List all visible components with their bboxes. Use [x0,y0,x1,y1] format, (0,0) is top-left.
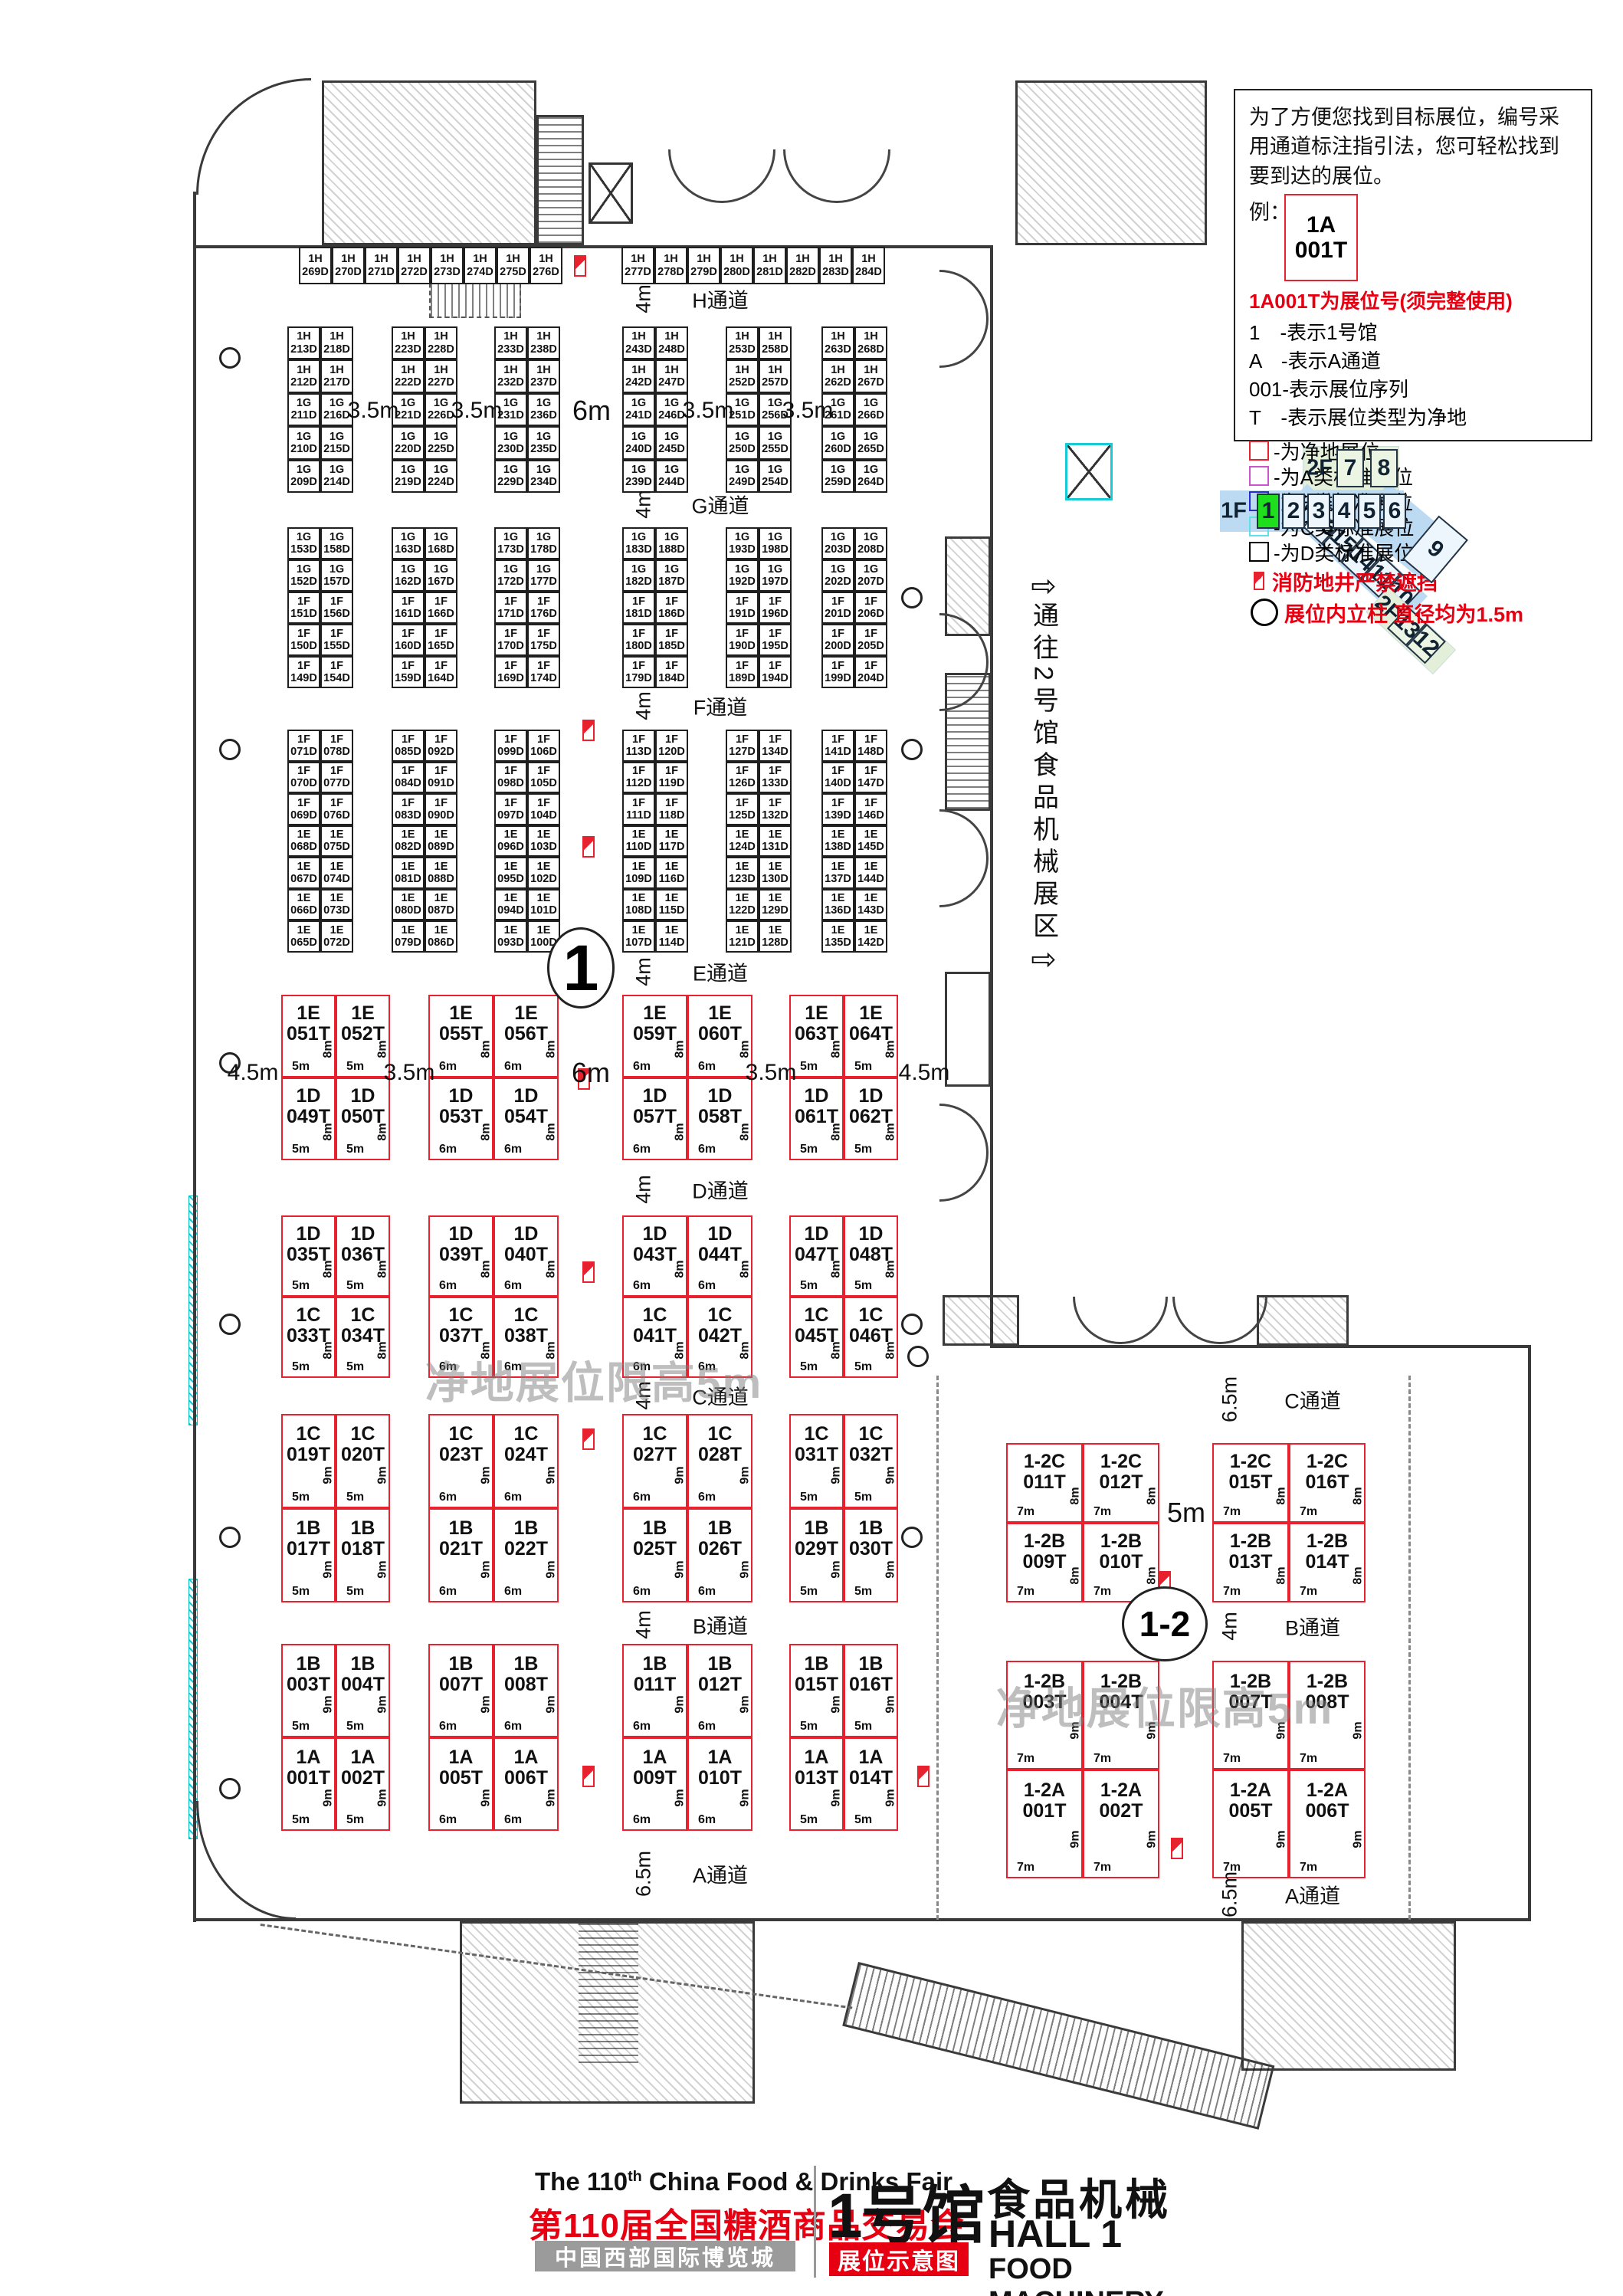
booth-1-2C-011T: 1-2C011T8m7m [1006,1443,1083,1523]
minimap-hall-4: 4 [1333,494,1356,529]
arrow-right-icon: ⇨ [1031,571,1057,602]
booth-1D-048T: 1D048T8m5m [844,1215,898,1297]
booth-1G-236D: 1G236D [527,393,560,426]
booth-1F-196D: 1F196D [759,592,792,624]
booth-1-2A-006T: 1-2A006T9m7m [1289,1770,1366,1878]
booth-1D-061T: 1D061T8m5m [789,1077,844,1160]
booth-1A-006T: 1A006T9m6m [493,1737,559,1831]
booth-1D-049T: 1D049T8m5m [281,1077,336,1160]
booth-1-2A-002T: 1-2A002T9m7m [1083,1770,1159,1878]
booth-1F-127D: 1F127D [726,730,759,762]
booth-1F-160D: 1F160D [392,624,425,656]
legend-intro-1: 为了方便您找到目标展位，编号采 [1249,103,1577,132]
booth-1F-125D: 1F125D [726,793,759,825]
booth-1H-274D: 1H274D [464,247,497,284]
booth-1H-243D: 1H243D [622,326,655,359]
booth-1B-025T: 1B025T9m6m [622,1508,687,1602]
booth-1G-153D: 1G153D [287,527,320,559]
gap-dim-label: 4.5m [228,1060,279,1086]
door-arc-icon [939,319,989,368]
fire-well-icon [582,836,595,858]
divider [814,2166,816,2278]
door-arc-icon [837,149,890,203]
booth-1H-247D: 1H247D [655,359,688,392]
booth-1G-239D: 1G239D [622,460,655,493]
door-arc-icon [1120,1297,1168,1344]
booth-1F-091D: 1F091D [425,762,457,794]
gap-dim-label: 3.5m [348,398,399,424]
booth-1F-174D: 1F174D [527,656,560,688]
legend-rule-2: A -表示A通道 [1249,347,1577,376]
booth-1B-026T: 1B026T9m6m [687,1508,752,1602]
booth-1H-248D: 1H248D [655,326,688,359]
booth-1A-002T: 1A002T9m5m [336,1737,390,1831]
booth-1E-109D: 1E109D [622,857,655,889]
booth-1E-122D: 1E122D [726,889,759,921]
booth-1E-056T: 1E056T8m6m [493,995,559,1077]
booth-1G-219D: 1G219D [392,460,425,493]
booth-1G-178D: 1G178D [527,527,560,559]
pillar-icon [219,739,241,760]
pillar-icon [219,1314,241,1335]
booth-1B-018T: 1B018T9m5m [336,1508,390,1602]
wing-boundary-dashed [936,1376,939,1920]
booth-1E-114D: 1E114D [655,920,688,953]
legend-example-label: 例： [1249,198,1290,227]
fire-well-icon [582,1261,595,1283]
booth-1F-169D: 1F169D [494,656,527,688]
booth-1C-031T: 1C031T9m5m [789,1414,844,1508]
booth-1E-103D: 1E103D [527,825,560,858]
booth-1F-189D: 1F189D [726,656,759,688]
booth-1D-043T: 1D043T8m6m [622,1215,687,1297]
booth-1G-163D: 1G163D [392,527,425,559]
booth-1F-165D: 1F165D [425,624,457,656]
booth-1H-222D: 1H222D [392,359,425,392]
booth-1H-268D: 1H268D [854,326,887,359]
floor-plan-page: 为了方便您找到目标展位，编号采 用通道标注指引法，您可轻松找到 要到达的展位。 … [0,0,1623,2296]
booth-1E-101D: 1E101D [527,889,560,921]
booth-1G-187D: 1G187D [655,559,688,592]
booth-1E-065D: 1E065D [287,920,320,953]
gap-dim-label: 3.5m [384,1060,435,1086]
booth-1G-264D: 1G264D [854,460,887,493]
booth-1E-115D: 1E115D [655,889,688,921]
booth-1H-233D: 1H233D [494,326,527,359]
booth-1F-092D: 1F092D [425,730,457,762]
booth-1E-082D: 1E082D [392,825,425,858]
booth-1F-112D: 1F112D [622,762,655,794]
pillar-icon [901,1314,923,1335]
booth-1G-240D: 1G240D [622,426,655,459]
door-arc-icon [939,1153,989,1202]
booth-1D-057T: 1D057T8m6m [622,1077,687,1160]
aisle-width-label: 4m [632,284,656,313]
booth-1H-238D: 1H238D [527,326,560,359]
booth-1F-151D: 1F151D [287,592,320,624]
booth-1H-281D: 1H281D [753,247,786,284]
booth-1-2A-001T: 1-2A001T9m7m [1006,1770,1083,1878]
booth-1G-225D: 1G225D [425,426,457,459]
booth-1F-069D: 1F069D [287,793,320,825]
booth-1F-083D: 1F083D [392,793,425,825]
booth-1-2B-014T: 1-2B014T8m7m [1289,1523,1366,1602]
booth-1H-212D: 1H212D [287,359,320,392]
booth-1E-067D: 1E067D [287,857,320,889]
booth-1H-217D: 1H217D [320,359,353,392]
fire-well-icon [582,1428,595,1450]
booth-1D-040T: 1D040T8m6m [493,1215,559,1297]
booth-1A-005T: 1A005T9m6m [428,1737,493,1831]
booth-1G-198D: 1G198D [759,527,792,559]
booth-1F-071D: 1F071D [287,730,320,762]
escalator-icon [842,1962,1274,2130]
booth-1G-265D: 1G265D [854,426,887,459]
wing-aisle-label-B通道: B通道 [1285,1612,1340,1642]
booth-1E-136D: 1E136D [821,889,854,921]
booth-1E-107D: 1E107D [622,920,655,953]
booth-1E-094D: 1E094D [494,889,527,921]
booth-1H-223D: 1H223D [392,326,425,359]
gap-dim-label: 3.5m [683,398,734,424]
aisle-label-G通道: G通道 [691,490,749,520]
booth-1F-070D: 1F070D [287,762,320,794]
hall-title-en: HALL 1 [989,2212,1122,2256]
booth-1E-064T: 1E064T8m5m [844,995,898,1077]
booth-1F-195D: 1F195D [759,624,792,656]
booth-1E-108D: 1E108D [622,889,655,921]
booth-1H-263D: 1H263D [821,326,854,359]
fire-well-icon [1254,572,1264,590]
booth-1F-133D: 1F133D [759,762,792,794]
booth-1G-202D: 1G202D [821,559,854,592]
pillar-icon [901,739,923,760]
booth-1F-180D: 1F180D [622,624,655,656]
booth-1B-003T: 1B003T9m5m [281,1644,336,1737]
booth-1F-176D: 1F176D [527,592,560,624]
height-limit-watermark: 净地展位限高5m [425,1348,762,1411]
booth-1E-066D: 1E066D [287,889,320,921]
booth-1F-175D: 1F175D [527,624,560,656]
booth-1A-009T: 1A009T9m6m [622,1737,687,1831]
booth-1E-145D: 1E145D [854,825,887,858]
elevator-icon [589,162,633,224]
aisle-width-label: 4m [632,957,656,986]
booth-1H-228D: 1H228D [425,326,457,359]
booth-1G-215D: 1G215D [320,426,353,459]
swatch-icon [1249,466,1269,486]
pillar-icon [219,347,241,369]
height-limit-watermark: 净地展位限高5m [996,1674,1333,1737]
booth-1F-186D: 1F186D [655,592,688,624]
booth-1E-129D: 1E129D [759,889,792,921]
booth-1G-177D: 1G177D [527,559,560,592]
booth-1G-193D: 1G193D [726,527,759,559]
gap-dim-label: 3.5m [782,398,834,424]
booth-1G-245D: 1G245D [655,426,688,459]
booth-1E-093D: 1E093D [494,920,527,953]
booth-1C-027T: 1C027T9m6m [622,1414,687,1508]
legend-rule-3: 001-表示展位序列 [1249,376,1577,404]
booth-1F-111D: 1F111D [622,793,655,825]
aisle-width-label: 4m [632,490,656,519]
minimap-hall-1: 1 [1257,494,1280,529]
booth-1E-060T: 1E060T8m6m [687,995,752,1077]
aisle-label-E通道: E通道 [693,957,748,987]
stair-block [536,115,584,245]
restroom-block [460,1921,755,2104]
booth-1F-179D: 1F179D [622,656,655,688]
booth-1D-047T: 1D047T8m5m [789,1215,844,1297]
minimap-hall-3: 3 [1307,494,1330,529]
booth-1E-087D: 1E087D [425,889,457,921]
booth-1F-099D: 1F099D [494,730,527,762]
booth-1G-210D: 1G210D [287,426,320,459]
legend-intro-2: 用通道标注指引法，您可轻松找到 [1249,132,1577,161]
booth-1H-272D: 1H272D [398,247,431,284]
booth-1C-019T: 1C019T9m5m [281,1414,336,1508]
legend-rule-4: T -表示展位类型为净地 [1249,404,1577,432]
booth-1G-209D: 1G209D [287,460,320,493]
service-block [945,972,991,1087]
booth-1F-098D: 1F098D [494,762,527,794]
booth-1E-135D: 1E135D [821,920,854,953]
minimap-1f-label: 1F [1221,499,1247,524]
booth-1-2B-009T: 1-2B009T8m7m [1006,1523,1083,1602]
booth-1G-244D: 1G244D [655,460,688,493]
legend-fire-note: 消防地井严禁遮挡 [1272,566,1438,596]
booth-1F-181D: 1F181D [622,592,655,624]
booth-1E-130D: 1E130D [759,857,792,889]
booth-1H-279D: 1H279D [687,247,720,284]
fire-well-icon [917,1766,930,1787]
booth-1F-164D: 1F164D [425,656,457,688]
booth-1H-271D: 1H271D [365,247,398,284]
booth-1G-241D: 1G241D [622,393,655,426]
door-arc-icon [939,809,989,858]
booth-1F-126D: 1F126D [726,762,759,794]
wing-aisle-width-label: 6.5m [1218,1376,1242,1422]
fire-well-icon [582,720,595,741]
booth-1F-185D: 1F185D [655,624,688,656]
elevator-icon [1065,443,1113,500]
booth-1D-054T: 1D054T8m6m [493,1077,559,1160]
booth-1H-253D: 1H253D [726,326,759,359]
booth-1G-259D: 1G259D [821,460,854,493]
booth-1H-237D: 1H237D [527,359,560,392]
minimap-hall-7: 7 [1336,449,1364,487]
booth-1F-090D: 1F090D [425,793,457,825]
gap-dim-label: 4.5m [899,1060,950,1086]
pillar-icon [901,587,923,608]
booth-1F-205D: 1F205D [854,624,887,656]
booth-1-2B-013T: 1-2B013T8m7m [1212,1523,1289,1602]
booth-1F-201D: 1F201D [821,592,854,624]
pillar-icon [901,1527,923,1548]
booth-1F-170D: 1F170D [494,624,527,656]
booth-1A-014T: 1A014T9m5m [844,1737,898,1831]
aisle-label-D通道: D通道 [692,1175,749,1205]
swatch-icon [1249,441,1269,461]
gap-dim-label: 6m [572,1057,610,1089]
booth-1H-262D: 1H262D [821,359,854,392]
arrow-right-icon: ⇨ [1031,944,1057,975]
legend-rule-1: 1 -表示1号馆 [1249,319,1577,347]
booth-1E-059T: 1E059T8m6m [622,995,687,1077]
booth-1G-230D: 1G230D [494,426,527,459]
booth-1E-072D: 1E072D [320,920,353,953]
booth-1G-235D: 1G235D [527,426,560,459]
door-arc-icon [939,858,989,907]
booth-1G-220D: 1G220D [392,426,425,459]
wing-aisle-width-label: 6.5m [1218,1871,1242,1917]
booth-1E-081D: 1E081D [392,857,425,889]
booth-1G-211D: 1G211D [287,393,320,426]
booth-1H-257D: 1H257D [759,359,792,392]
minimap-hall-8: 8 [1370,449,1398,487]
gap-dim-label: 3.5m [746,1060,797,1086]
booth-1E-086D: 1E086D [425,920,457,953]
booth-1H-270D: 1H270D [332,247,365,284]
booth-1G-162D: 1G162D [392,559,425,592]
booth-1G-255D: 1G255D [759,426,792,459]
booth-1G-188D: 1G188D [655,527,688,559]
booth-1F-154D: 1F154D [320,656,353,688]
booth-1G-203D: 1G203D [821,527,854,559]
booth-1C-046T: 1C046T8m5m [844,1297,898,1378]
booth-1G-152D: 1G152D [287,559,320,592]
booth-1E-102D: 1E102D [527,857,560,889]
booth-1G-254D: 1G254D [759,460,792,493]
booth-1F-159D: 1F159D [392,656,425,688]
booth-1F-156D: 1F156D [320,592,353,624]
wing-aisle-width-label: 4m [1218,1612,1242,1641]
stair-block [1257,1295,1349,1346]
hall-1-2-badge: 1-2 [1122,1586,1208,1661]
booth-1F-194D: 1F194D [759,656,792,688]
booth-1F-113D: 1F113D [622,730,655,762]
booth-1G-192D: 1G192D [726,559,759,592]
booth-1H-242D: 1H242D [622,359,655,392]
booth-1B-016T: 1B016T9m5m [844,1644,898,1737]
booth-1G-249D: 1G249D [726,460,759,493]
booth-1F-149D: 1F149D [287,656,320,688]
booth-1G-207D: 1G207D [854,559,887,592]
booth-1E-123D: 1E123D [726,857,759,889]
booth-1F-085D: 1F085D [392,730,425,762]
booth-1G-250D: 1G250D [726,426,759,459]
legend-example-booth: 1A 001T [1284,194,1358,281]
booth-1C-033T: 1C033T8m5m [281,1297,336,1378]
booth-1C-032T: 1C032T9m5m [844,1414,898,1508]
fire-well-icon [1171,1838,1183,1859]
aisle-width-label: 6.5m [632,1851,656,1897]
booth-1F-140D: 1F140D [821,762,854,794]
booth-1B-029T: 1B029T9m5m [789,1508,844,1602]
booth-1E-080D: 1E080D [392,889,425,921]
booth-1F-134D: 1F134D [759,730,792,762]
booth-1F-077D: 1F077D [320,762,353,794]
aisle-width-label: 4m [632,1175,656,1204]
minimap-hall-6: 6 [1383,494,1406,529]
booth-1G-229D: 1G229D [494,460,527,493]
booth-1G-173D: 1G173D [494,527,527,559]
booth-1E-131D: 1E131D [759,825,792,858]
booth-1E-063T: 1E063T8m5m [789,995,844,1077]
booth-1D-058T: 1D058T8m6m [687,1077,752,1160]
booth-1D-039T: 1D039T8m6m [428,1215,493,1297]
hall-1-badge: 1 [547,927,615,1009]
venue-bar: 中国西部国际博览城 [535,2241,795,2271]
corridor-note-text: 通往2号馆食品机械展区 [1025,602,1063,944]
booth-1F-206D: 1F206D [854,592,887,624]
booth-1F-132D: 1F132D [759,793,792,825]
booth-1F-190D: 1F190D [726,624,759,656]
legend-intro-3: 要到达的展位。 [1249,162,1577,191]
booth-1-2C-012T: 1-2C012T8m7m [1083,1443,1159,1523]
legend-swatch-row: -为A类标准展位 [1249,464,1577,489]
booth-1E-073D: 1E073D [320,889,353,921]
booth-1F-084D: 1F084D [392,762,425,794]
booth-1C-020T: 1C020T9m5m [336,1414,390,1508]
booth-1E-137D: 1E137D [821,857,854,889]
booth-1F-171D: 1F171D [494,592,527,624]
booth-1G-172D: 1G172D [494,559,527,592]
pillar-icon [1251,599,1278,626]
booth-1A-010T: 1A010T9m6m [687,1737,752,1831]
door-arc-icon [783,149,837,203]
legend-box: 为了方便您找到目标展位，编号采 用通道标注指引法，您可轻松找到 要到达的展位。 … [1234,89,1592,441]
booth-1F-166D: 1F166D [425,592,457,624]
pillar-icon [907,1346,929,1367]
booth-1F-119D: 1F119D [655,762,688,794]
booth-1H-277D: 1H277D [621,247,654,284]
booth-1G-214D: 1G214D [320,460,353,493]
booth-1H-232D: 1H232D [494,359,527,392]
aisle-label-H通道: H通道 [692,284,749,314]
plan-badge: 展位示意图 [829,2242,969,2276]
legend-swatch-row: -为净地展位 [1249,438,1577,464]
booth-1B-011T: 1B011T9m6m [622,1644,687,1737]
booth-1G-183D: 1G183D [622,527,655,559]
booth-1H-275D: 1H275D [497,247,530,284]
wing-right-wall [1528,1345,1531,1921]
restroom-block [322,80,536,245]
booth-1-2A-005T: 1-2A005T9m7m [1212,1770,1289,1878]
booth-1G-234D: 1G234D [527,460,560,493]
booth-1F-106D: 1F106D [527,730,560,762]
booth-1G-182D: 1G182D [622,559,655,592]
aisle-label-A通道: A通道 [693,1859,748,1889]
booth-1H-280D: 1H280D [720,247,753,284]
aisle-label-F通道: F通道 [693,691,748,721]
booth-1E-055T: 1E055T8m6m [428,995,493,1077]
booth-1H-283D: 1H283D [819,247,852,284]
booth-1E-128D: 1E128D [759,920,792,953]
gap-dim-label: 6m [572,395,611,427]
booth-1A-013T: 1A013T9m5m [789,1737,844,1831]
stair-block [943,1295,1019,1346]
booth-1H-258D: 1H258D [759,326,792,359]
booth-1E-116D: 1E116D [655,857,688,889]
wing-aisle-label-A通道: A通道 [1285,1880,1340,1910]
booth-1B-015T: 1B015T9m5m [789,1644,844,1737]
door-arc-icon [1073,1297,1120,1344]
booth-1F-199D: 1F199D [821,656,854,688]
booth-1H-252D: 1H252D [726,359,759,392]
minimap-hall-2: 2 [1282,494,1305,529]
booth-1E-052T: 1E052T8m5m [336,995,390,1077]
